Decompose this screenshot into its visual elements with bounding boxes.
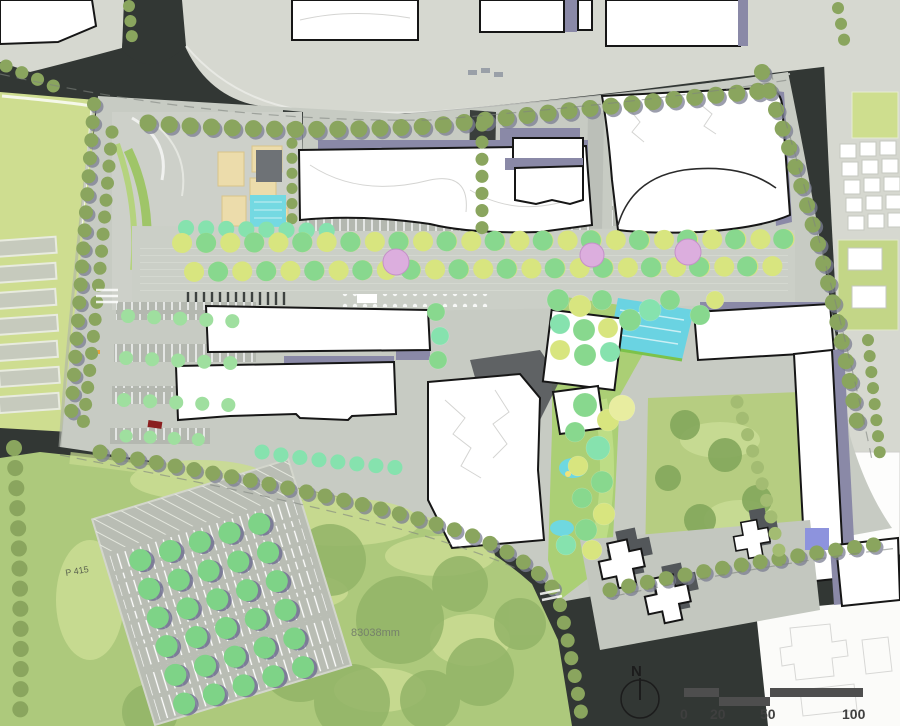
scale-tick-100: 100 [842,706,866,722]
master-plan-svg: 83038mm P 415 N 0 20 50 100 [0,0,900,726]
scale-tick-50: 50 [760,706,776,722]
north-label: N [631,663,642,680]
dimension-annotation: 83038mm [351,627,400,639]
plaza-structure [256,150,282,182]
scale-tick-20: 20 [710,706,726,722]
building-office-bar-b [176,362,396,420]
scale-tick-0: 0 [680,706,688,722]
site-plan-canvas: 83038mm P 415 N 0 20 50 100 [0,0,900,726]
building-slab-b [515,166,583,204]
building-office-bar-a [206,306,430,352]
